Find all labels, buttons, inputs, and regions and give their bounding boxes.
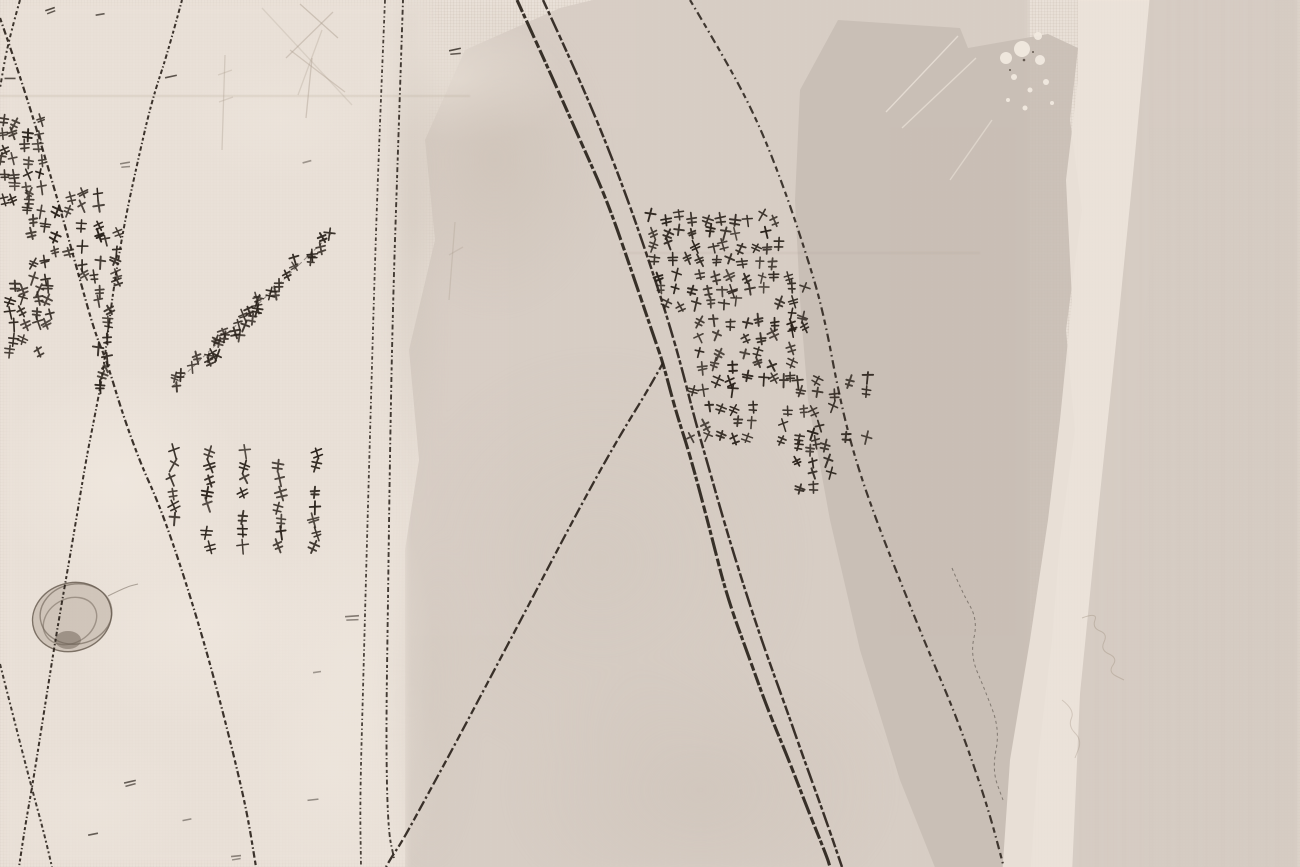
stitch-tick: [124, 780, 137, 786]
light-scratch: [886, 36, 958, 112]
light-scratch: [902, 58, 976, 128]
stitch-tick: [88, 833, 98, 836]
stitch-tick: [231, 855, 241, 860]
torn-white-spot: [1000, 52, 1012, 64]
stitch-tick: [165, 75, 177, 78]
stitch-tick: [307, 799, 318, 800]
torn-white-spot: [1028, 88, 1033, 93]
stitch-tick: [449, 48, 462, 55]
torn-white-spot: [1011, 74, 1017, 80]
pencil-thread-wash-boundary: [952, 568, 1003, 800]
torn-white-spot: [1035, 55, 1045, 65]
stitch-tick: [313, 671, 321, 673]
torn-white-spot: [1023, 106, 1028, 111]
pencil-reed-sketch: [300, 4, 338, 38]
pencil-reed-sketch: [262, 8, 352, 105]
stitch-tick: [345, 615, 359, 621]
stitch-tick: [182, 819, 191, 821]
stitch-line-branch-diagonal: [386, 363, 663, 867]
light-scratch: [950, 120, 992, 180]
dark-speck: [1023, 59, 1026, 62]
stitch-tick: [120, 162, 131, 168]
pencil-squiggle: [1062, 700, 1080, 758]
pencil-reed-sketch: [219, 97, 233, 102]
stitch-tick: [302, 161, 311, 163]
cluster-chain-on-left-line: [92, 226, 125, 393]
torn-white-spot: [1050, 101, 1054, 105]
scribble-blob: [23, 572, 138, 661]
cluster-grid-block: [165, 442, 324, 555]
stitch-tick: [96, 13, 105, 16]
torn-white-spot: [1034, 32, 1042, 40]
dark-speck: [1032, 51, 1034, 53]
ink-stitch-overlay: [0, 0, 1300, 867]
pencil-reed-sketch: [298, 30, 322, 95]
pencil-reed-sketch: [222, 55, 225, 150]
stitch-line-bottom-left-short: [0, 664, 52, 867]
torn-white-spot: [1006, 98, 1010, 102]
dark-speck: [1009, 69, 1011, 71]
torn-white-spot: [1043, 79, 1049, 85]
torn-white-spot: [1014, 41, 1030, 57]
stitch-tick: [45, 7, 56, 14]
stitch-line-thick-pair-a: [517, 0, 830, 867]
pencil-reed-sketch: [286, 12, 333, 58]
pencil-squiggle: [1082, 615, 1124, 680]
pencil-reed-sketch: [449, 222, 455, 300]
abstract-stitch-map-canvas: [0, 0, 1300, 867]
stitch-line-vertical-pair-a: [360, 0, 385, 867]
cluster-left-edge: [0, 113, 106, 359]
pencil-reed-sketch: [290, 50, 345, 92]
stitch-tick: [5, 78, 16, 80]
cluster-chain-mid-left: [170, 227, 336, 392]
stitch-line-left-crossing: [19, 0, 182, 867]
stitch-line-thick-pair-b: [543, 0, 842, 867]
pencil-reed-sketch: [449, 247, 463, 255]
stitch-line-vertical-pair-b: [387, 0, 404, 858]
